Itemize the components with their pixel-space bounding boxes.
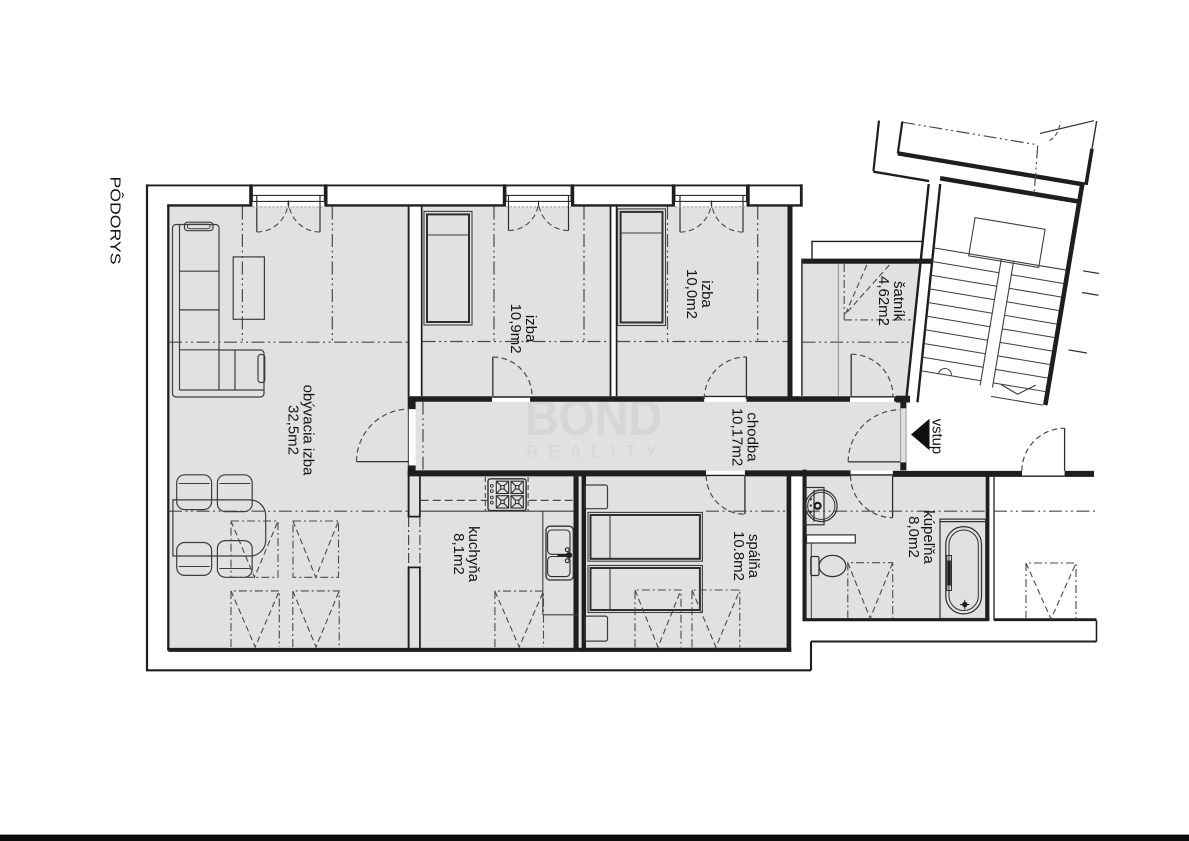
- svg-text:šatník4,62m2: šatník4,62m2: [875, 276, 907, 326]
- svg-text:kúpeľňa8,0m2: kúpeľňa8,0m2: [905, 510, 937, 564]
- svg-text:chodba10,17m2: chodba10,17m2: [729, 408, 761, 466]
- svg-text:PÔDORYS: PÔDORYS: [107, 177, 124, 265]
- svg-text:kuchyňa8,1m2: kuchyňa8,1m2: [450, 526, 482, 583]
- svg-text:REALITY: REALITY: [526, 442, 667, 462]
- svg-text:vstup: vstup: [929, 419, 946, 455]
- svg-text:spálňa10.8m2: spálňa10.8m2: [730, 531, 762, 581]
